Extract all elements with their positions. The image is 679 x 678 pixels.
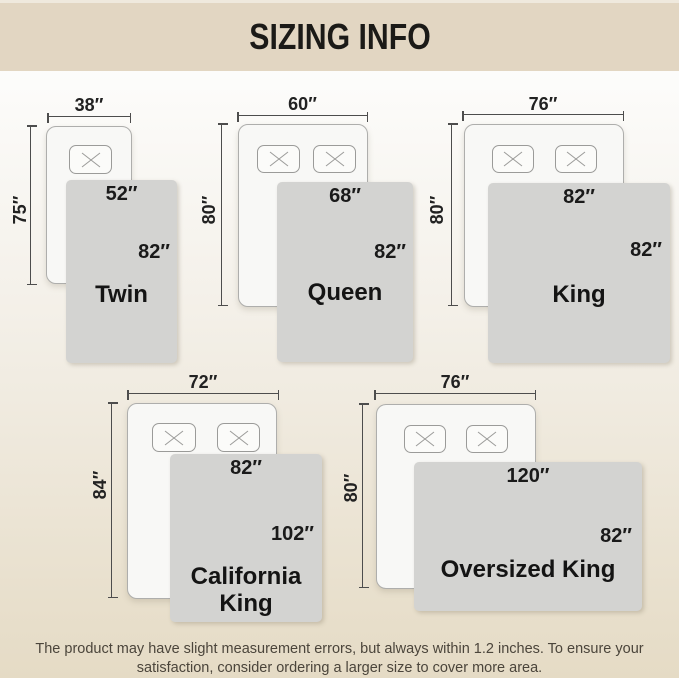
twin-blanket-length-label: 82″: [66, 241, 170, 264]
king-blanket: [488, 183, 670, 363]
king-blanket-length-label: 82″: [488, 239, 662, 262]
california-king-length-dimension-line: [111, 403, 112, 597]
queen-pillow-left: [257, 145, 300, 173]
oversized-king-blanket-length-label: 82″: [414, 525, 632, 548]
sizing-info-graphic: SIZING INFO 38″ 75″ 52″ 82″ Twin 60″ 80″…: [0, 0, 679, 678]
pillow-x-icon: [472, 429, 502, 449]
king-length-dimension-line: [451, 124, 452, 305]
disclaimer-line-1: The product may have slight measurement …: [0, 640, 679, 659]
twin-pillow: [69, 145, 112, 174]
california-king-pillow-right: [217, 423, 260, 452]
header-banner: SIZING INFO: [0, 0, 679, 71]
pillow-x-icon: [224, 428, 254, 448]
king-width-dimension-line: [463, 114, 623, 115]
oversized-king-pillow-left: [404, 425, 446, 453]
pillow-x-icon: [498, 149, 528, 169]
california-king-bed-length-label: 84″: [90, 465, 110, 505]
twin-blanket-width-label: 52″: [66, 183, 177, 206]
california-king-width-dimension-line: [128, 393, 278, 394]
queen-pillow-right: [313, 145, 356, 173]
disclaimer: The product may have slight measurement …: [0, 640, 679, 677]
pillow-x-icon: [561, 149, 591, 169]
page-title: SIZING INFO: [249, 16, 430, 58]
california-king-pillow-left: [152, 423, 196, 452]
oversized-king-size-name: Oversized King: [414, 556, 642, 583]
queen-bed-width-label: 60″: [238, 94, 367, 115]
oversized-king-bed-width-label: 76″: [375, 372, 535, 393]
twin-size-name: Twin: [66, 281, 177, 308]
pillow-x-icon: [320, 149, 350, 169]
queen-length-dimension-line: [221, 124, 222, 305]
king-blanket-width-label: 82″: [488, 186, 670, 209]
oversized-king-width-dimension-line: [375, 393, 535, 394]
twin-length-dimension-line: [30, 126, 31, 284]
queen-blanket-width-label: 68″: [277, 185, 413, 208]
king-bed-length-label: 80″: [427, 190, 447, 230]
king-pillow-right: [555, 145, 597, 173]
oversized-king-pillow-right: [466, 425, 508, 453]
oversized-king-blanket-width-label: 120″: [414, 465, 642, 488]
king-bed-width-label: 76″: [463, 94, 623, 115]
king-pillow-left: [492, 145, 534, 173]
disclaimer-line-2: satisfaction, consider ordering a larger…: [0, 659, 679, 678]
queen-size-name: Queen: [277, 279, 413, 306]
pillow-x-icon: [410, 429, 440, 449]
oversized-king-length-dimension-line: [362, 404, 363, 587]
queen-blanket: [277, 182, 413, 362]
queen-width-dimension-line: [238, 115, 367, 116]
queen-blanket-length-label: 82″: [277, 241, 406, 264]
twin-bed-width-label: 38″: [48, 95, 130, 116]
pillow-x-icon: [159, 428, 189, 448]
twin-width-dimension-line: [48, 116, 130, 117]
twin-bed-length-label: 75″: [10, 190, 30, 230]
oversized-king-bed-length-label: 80″: [341, 468, 361, 508]
king-size-name: King: [488, 281, 670, 308]
california-king-bed-width-label: 72″: [128, 372, 278, 393]
california-king-blanket-length-label: 102″: [170, 523, 314, 546]
pillow-x-icon: [76, 150, 106, 170]
california-king-size-name: California King: [170, 563, 322, 617]
pillow-x-icon: [264, 149, 294, 169]
queen-bed-length-label: 80″: [199, 190, 219, 230]
twin-blanket: [66, 180, 177, 363]
california-king-blanket-width-label: 82″: [170, 457, 322, 480]
